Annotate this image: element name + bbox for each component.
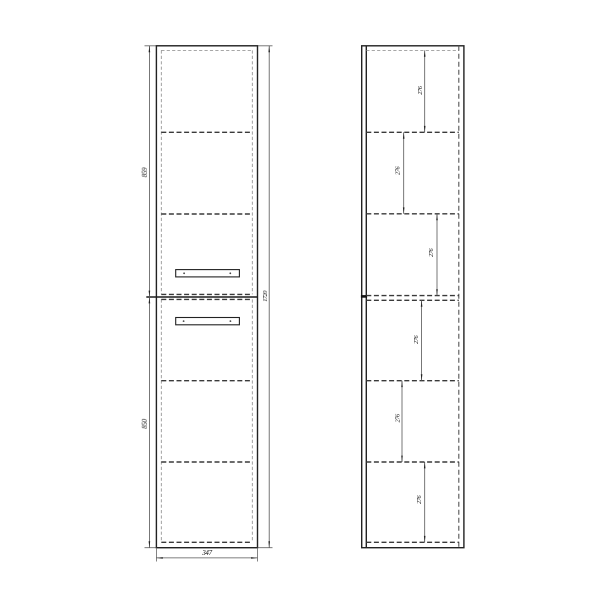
svg-text:276: 276 (413, 335, 420, 344)
svg-text:1720: 1720 (262, 290, 269, 302)
svg-text:859: 859 (141, 167, 149, 177)
svg-text:276: 276 (417, 85, 424, 94)
svg-text:850: 850 (141, 418, 149, 428)
svg-text:276: 276 (428, 248, 435, 257)
svg-text:347: 347 (201, 549, 212, 557)
svg-text:276: 276 (395, 166, 402, 175)
svg-text:276: 276 (416, 495, 423, 504)
svg-text:276: 276 (395, 413, 402, 422)
